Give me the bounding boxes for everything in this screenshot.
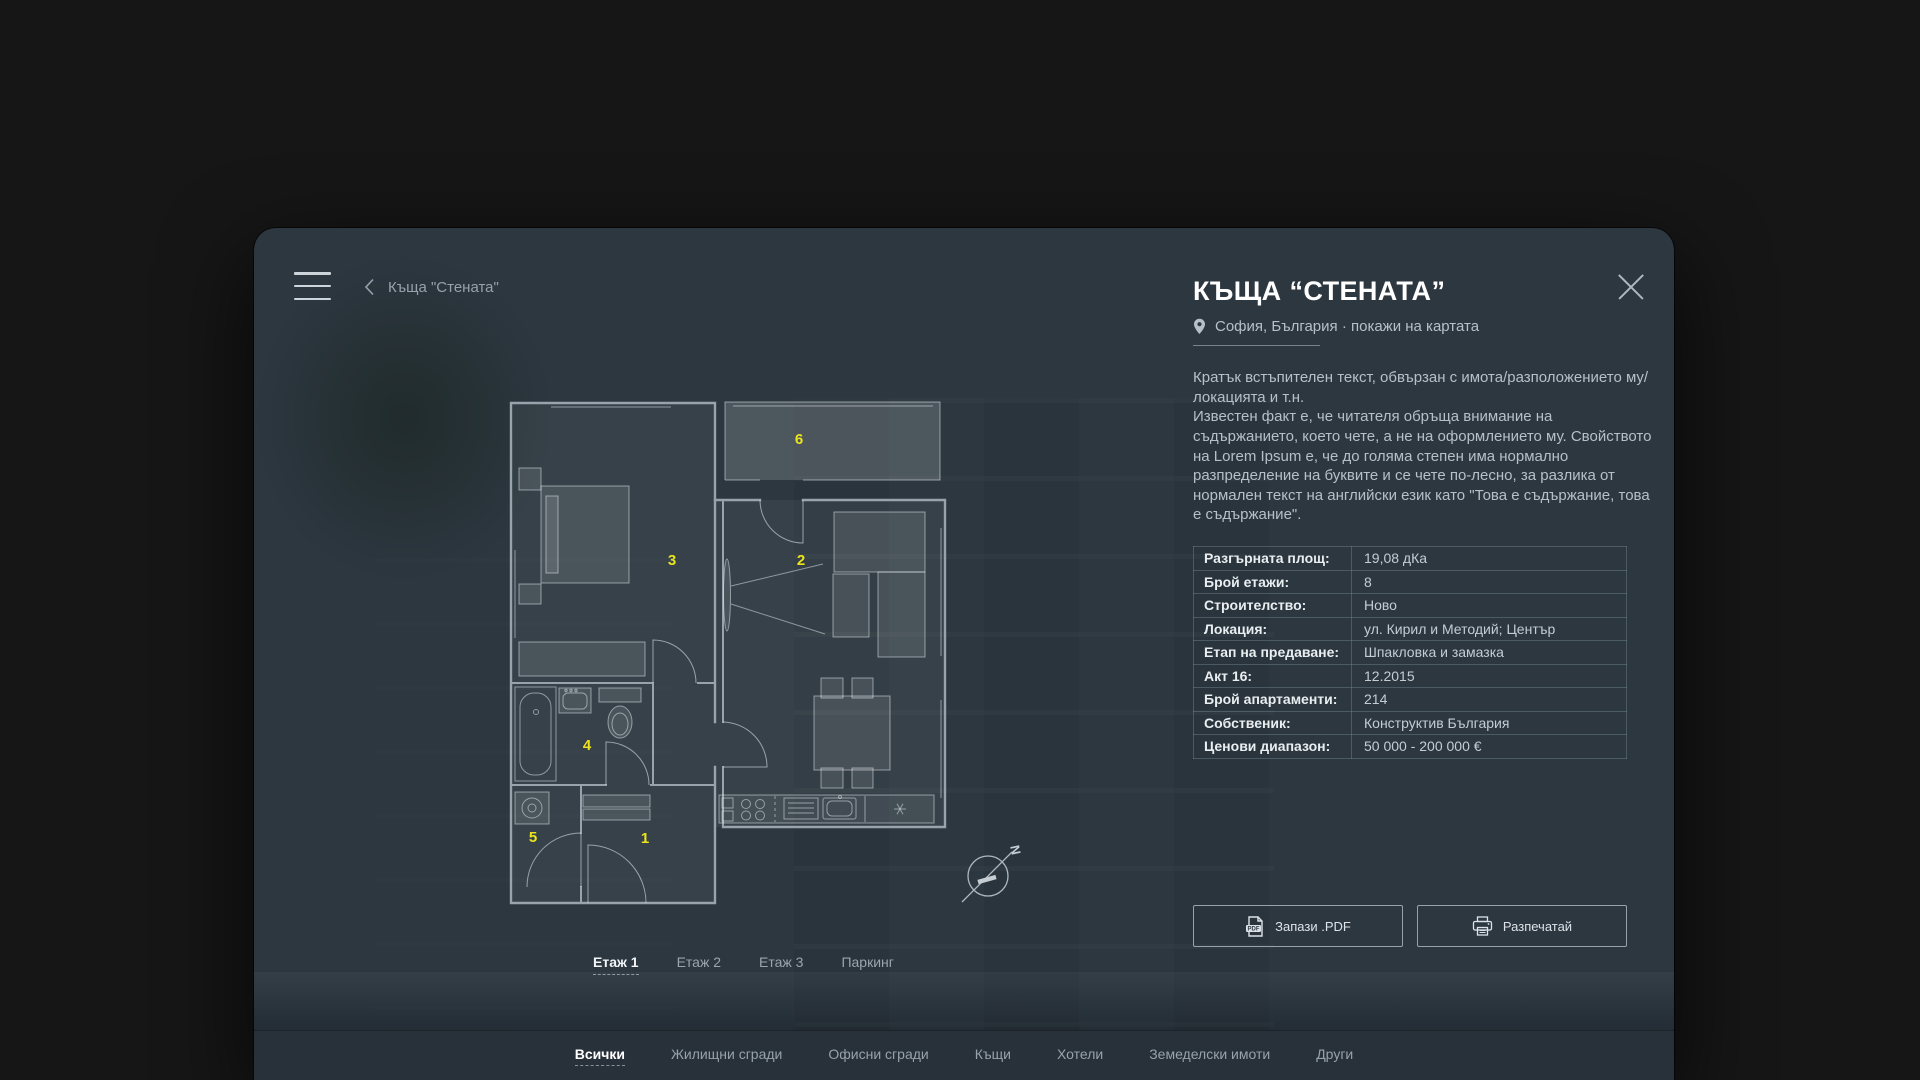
nav-item-office[interactable]: Офисни сгради [828,1046,928,1065]
detail-label: Брой апартаменти: [1194,688,1352,712]
room-number-bedroom: 3 [668,552,676,569]
table-row: Локация: ул. Кирил и Методий; Център [1194,617,1627,641]
table-row: Ценови диапазон: 50 000 - 200 000 € [1194,735,1627,759]
back-chevron-icon [364,278,374,296]
nav-item-all[interactable]: Всички [575,1046,625,1066]
floor-plan: 1 2 3 4 5 6 [503,400,947,906]
detail-label: Брой етажи: [1194,570,1352,594]
table-row: Разгърната площ: 19,08 дКа [1194,547,1627,571]
nav-item-residential[interactable]: Жилищни сгради [671,1046,782,1065]
background-photo-street [254,972,1674,1030]
location-link[interactable]: София, България · покажи на картата [1193,318,1479,335]
table-row: Брой апартаменти: 214 [1194,688,1627,712]
table-row: Брой етажи: 8 [1194,570,1627,594]
title-divider [1193,345,1320,346]
room-number-hallway: 1 [641,830,649,847]
detail-label: Строителство: [1194,594,1352,618]
print-label: Разпечатай [1503,919,1572,934]
compass-north-icon: N [952,836,1028,912]
nav-item-hotels[interactable]: Хотели [1057,1046,1103,1065]
detail-label: Разгърната площ: [1194,547,1352,571]
tab-floor-3[interactable]: Етаж 3 [759,954,803,975]
nav-item-houses[interactable]: Къщи [975,1046,1011,1065]
nav-item-agricultural[interactable]: Земеделски имоти [1149,1046,1270,1065]
location-text: София, България · покажи на картата [1215,318,1479,335]
table-row: Акт 16: 12.2015 [1194,664,1627,688]
print-button[interactable]: Разпечатай [1417,905,1627,947]
save-pdf-label: Запази .PDF [1275,919,1351,934]
tab-floor-2[interactable]: Етаж 2 [677,954,721,975]
room-number-bathroom: 4 [583,737,592,754]
table-row: Собственик: Конструктив България [1194,711,1627,735]
room-number-living: 2 [797,552,805,569]
detail-value: 214 [1352,688,1627,712]
detail-value: Ново [1352,594,1627,618]
detail-value: ул. Кирил и Методий; Център [1352,617,1627,641]
pdf-icon: PDF [1245,916,1265,937]
menu-icon[interactable] [294,272,331,300]
floor-plan-drawing: 1 2 3 4 5 6 [503,400,947,906]
tab-floor-1[interactable]: Етаж 1 [593,954,639,975]
detail-value: Шпакловка и замазка [1352,641,1627,665]
close-icon[interactable] [1612,268,1650,306]
detail-value: 50 000 - 200 000 € [1352,735,1627,759]
nav-item-other[interactable]: Други [1316,1046,1353,1065]
detail-value: 8 [1352,570,1627,594]
property-details-table: Разгърната площ: 19,08 дКа Брой етажи: 8… [1193,546,1627,759]
detail-value: Конструктив България [1352,711,1627,735]
detail-label: Ценови диапазон: [1194,735,1352,759]
menu-icon-bar [294,272,331,275]
room-number-storage: 5 [529,829,537,846]
intro-paragraph-2: Известен факт е, че читателя обръща вним… [1193,407,1661,525]
tab-parking[interactable]: Паркинг [841,954,893,975]
svg-text:N: N [1007,844,1024,856]
detail-value: 12.2015 [1352,664,1627,688]
menu-icon-bar [294,298,331,301]
printer-icon [1472,916,1493,936]
svg-text:PDF: PDF [1248,926,1260,932]
detail-value: 19,08 дКа [1352,547,1627,571]
category-nav: Всички Жилищни сгради Офисни сгради Къщи… [254,1030,1674,1080]
detail-label: Локация: [1194,617,1352,641]
desktop-background: Къща "Стената" [0,0,1920,1080]
save-pdf-button[interactable]: PDF Запази .PDF [1193,905,1403,947]
property-modal: Къща "Стената" [254,228,1674,1080]
floor-tabs: Етаж 1 Етаж 2 Етаж 3 Паркинг [593,954,894,975]
intro-paragraph-1: Кратък встъпителен текст, обвързан с имо… [1193,368,1661,407]
table-row: Етап на предаване: Шпакловка и замазка [1194,641,1627,665]
detail-label: Акт 16: [1194,664,1352,688]
room-number-balcony: 6 [795,431,803,448]
detail-label: Етап на предаване: [1194,641,1352,665]
map-pin-icon [1193,318,1206,335]
page-title: КЪЩА “СТЕНАТА” [1193,276,1445,307]
table-row: Строителство: Ново [1194,594,1627,618]
action-buttons: PDF Запази .PDF Разпечатай [1193,905,1627,947]
detail-label: Собственик: [1194,711,1352,735]
menu-icon-bar [294,285,331,288]
breadcrumb[interactable]: Къща "Стената" [364,278,499,296]
breadcrumb-title: Къща "Стената" [388,279,499,296]
intro-text: Кратък встъпителен текст, обвързан с имо… [1193,368,1661,525]
